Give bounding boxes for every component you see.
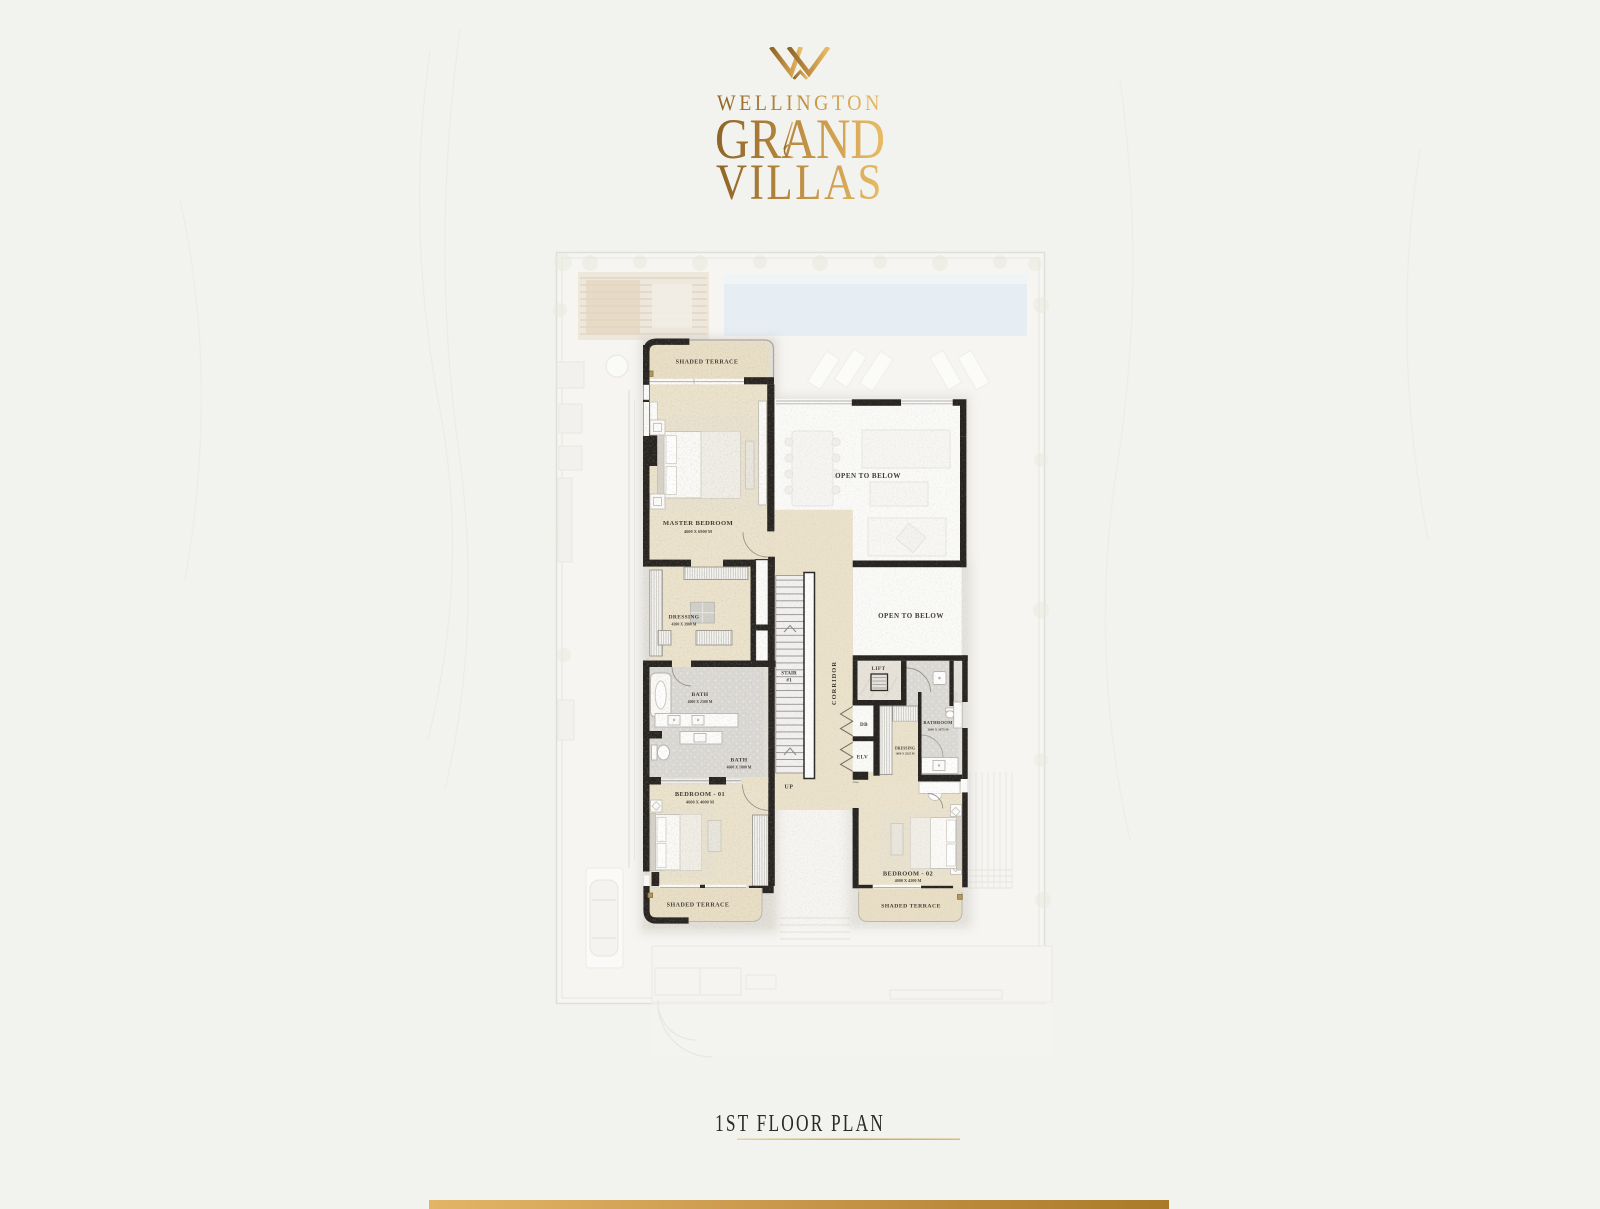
svg-text:1ST FLOOR PLAN: 1ST FLOOR PLAN (715, 1111, 885, 1137)
svg-text:VILLAS: VILLAS (716, 155, 884, 211)
